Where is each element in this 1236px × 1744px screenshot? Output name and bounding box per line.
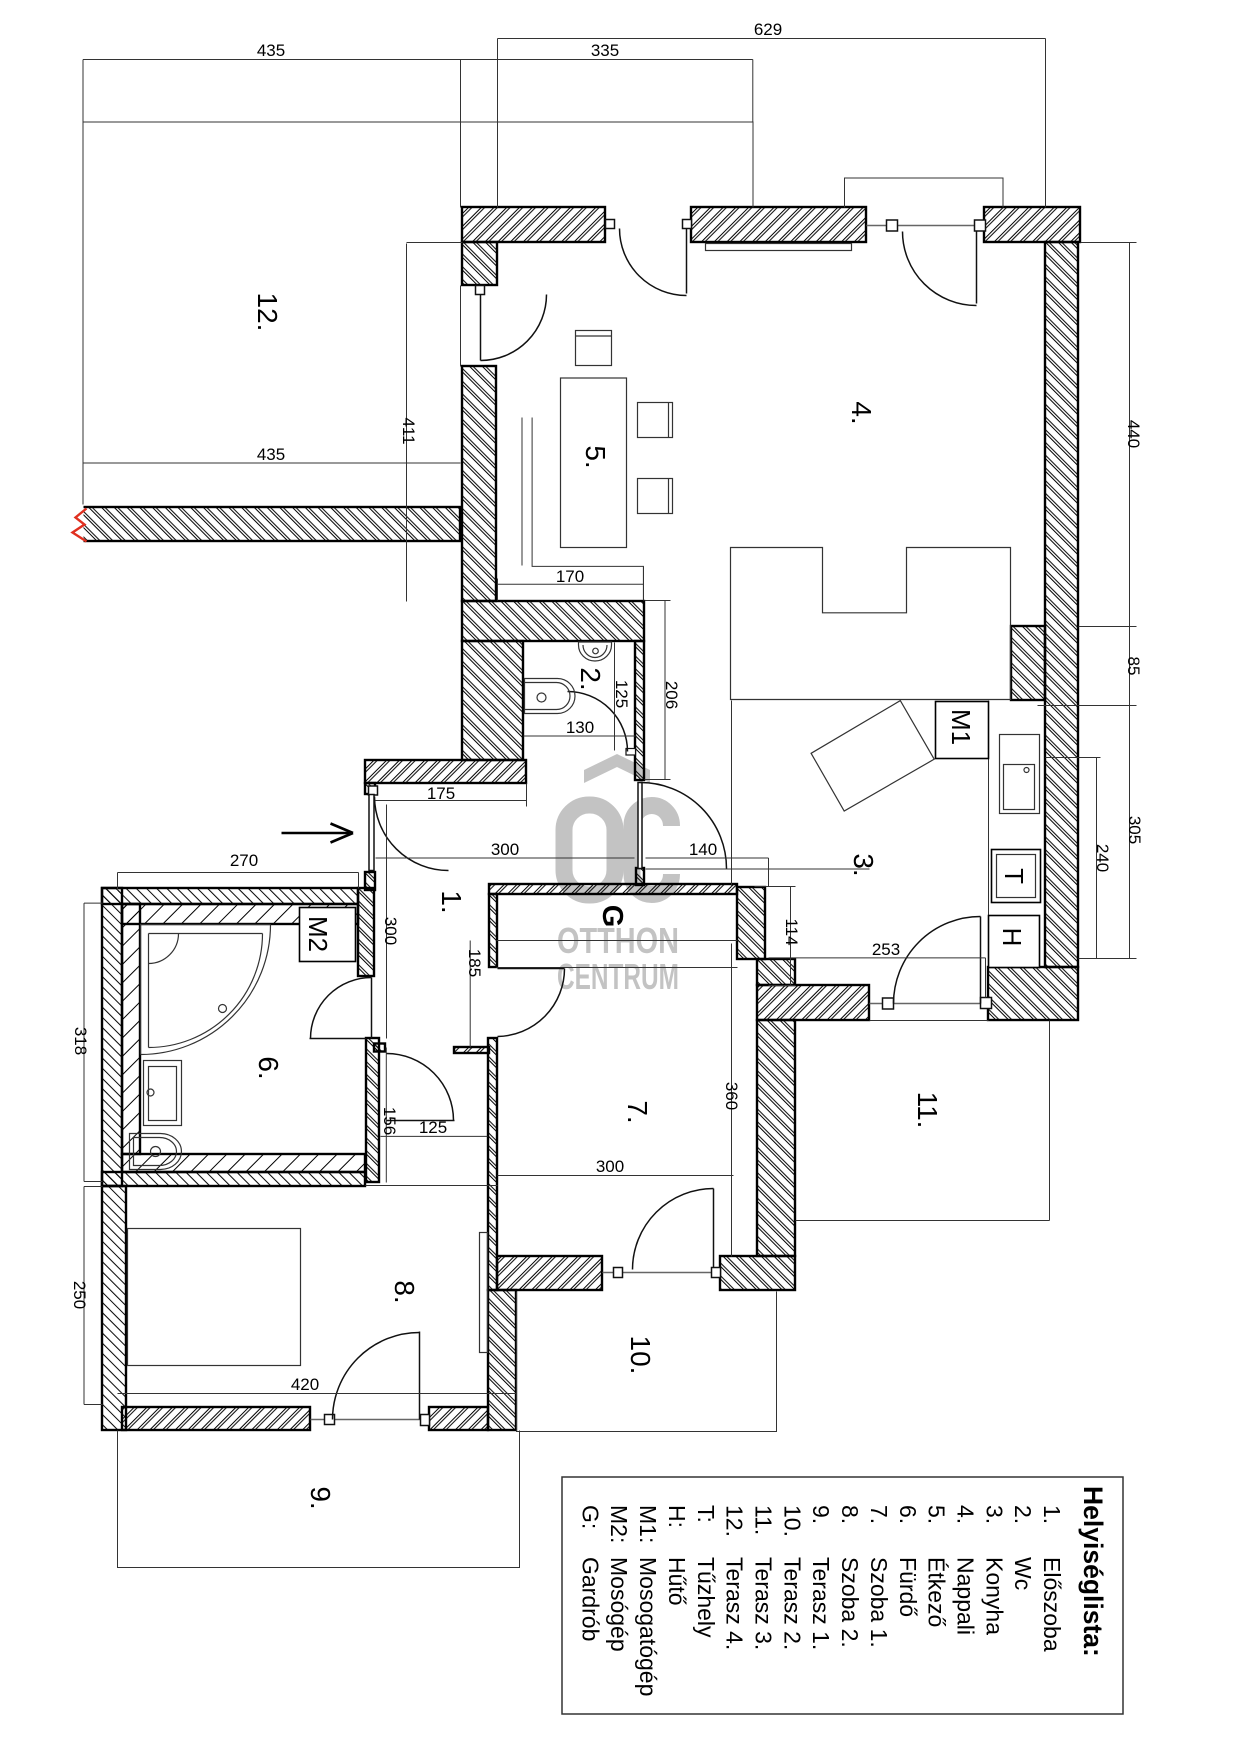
svg-text:300: 300 — [381, 917, 400, 945]
svg-text:206: 206 — [662, 681, 681, 709]
svg-text:125: 125 — [419, 1118, 447, 1137]
svg-text:6.Fürdő: 6.Fürdő — [895, 1505, 921, 1617]
svg-text:8.: 8. — [389, 1280, 420, 1303]
svg-text:10.Terasz 2.: 10.Terasz 2. — [779, 1505, 805, 1650]
svg-text:185: 185 — [465, 949, 484, 977]
svg-text:11.: 11. — [912, 1092, 943, 1129]
svg-text:240: 240 — [1093, 844, 1112, 872]
svg-text:130: 130 — [566, 718, 594, 737]
svg-text:T: T — [999, 868, 1029, 884]
svg-text:270: 270 — [230, 851, 258, 870]
svg-text:253: 253 — [872, 940, 900, 959]
svg-text:1.: 1. — [436, 890, 467, 913]
svg-text:170: 170 — [556, 567, 584, 586]
svg-text:435: 435 — [257, 41, 285, 60]
svg-text:H: H — [997, 928, 1027, 947]
svg-text:318: 318 — [71, 1027, 90, 1055]
svg-text:300: 300 — [491, 840, 519, 859]
svg-text:420: 420 — [291, 1375, 319, 1394]
svg-text:140: 140 — [689, 840, 717, 859]
svg-text:5.: 5. — [580, 445, 611, 468]
svg-text:M1:Mosogatógép: M1:Mosogatógép — [635, 1505, 661, 1696]
svg-text:305: 305 — [1125, 816, 1144, 844]
svg-text:250: 250 — [70, 1281, 89, 1309]
svg-text:M1: M1 — [946, 709, 976, 745]
svg-text:411: 411 — [399, 417, 418, 444]
svg-text:2.: 2. — [575, 667, 606, 690]
svg-text:175: 175 — [427, 784, 455, 803]
svg-text:156: 156 — [380, 1107, 399, 1135]
svg-text:12.Terasz 4.: 12.Terasz 4. — [722, 1505, 748, 1650]
svg-text:435: 435 — [257, 445, 285, 464]
svg-text:360: 360 — [722, 1082, 741, 1110]
svg-text:12.: 12. — [252, 293, 283, 332]
svg-text:G: G — [596, 905, 628, 928]
svg-text:4.: 4. — [846, 401, 877, 424]
svg-text:G:Gardrób: G:Gardrób — [577, 1505, 603, 1641]
svg-text:335: 335 — [591, 41, 619, 60]
svg-text:5.Étkező: 5.Étkező — [924, 1505, 950, 1627]
svg-text:114: 114 — [782, 918, 801, 945]
svg-text:7.: 7. — [622, 1100, 653, 1123]
svg-text:Helyiséglista:: Helyiséglista: — [1078, 1486, 1108, 1657]
svg-text:9.: 9. — [305, 1486, 336, 1509]
svg-text:M2:Mosógép: M2:Mosógép — [606, 1505, 632, 1652]
svg-text:6.: 6. — [253, 1056, 284, 1079]
svg-text:CENTRUM: CENTRUM — [557, 956, 679, 997]
svg-text:629: 629 — [754, 20, 782, 39]
svg-text:125: 125 — [612, 680, 631, 708]
svg-text:11.Terasz 3.: 11.Terasz 3. — [751, 1505, 777, 1650]
svg-text:300: 300 — [596, 1157, 624, 1176]
svg-text:3.: 3. — [848, 853, 879, 876]
svg-text:10.: 10. — [625, 1336, 656, 1375]
svg-text:440: 440 — [1124, 420, 1143, 448]
svg-text:M2: M2 — [303, 916, 333, 952]
svg-text:85: 85 — [1124, 657, 1143, 676]
